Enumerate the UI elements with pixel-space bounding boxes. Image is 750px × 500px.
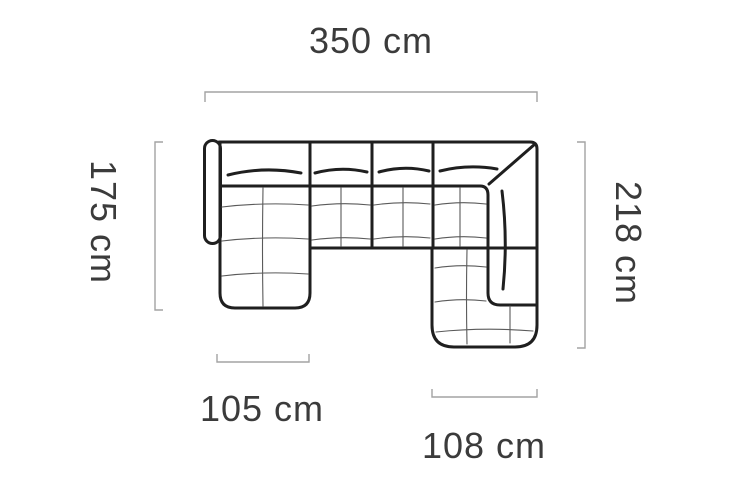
dimension-bracket-right: [577, 142, 585, 348]
dimension-label-chaise-right-width: 108 cm: [422, 425, 546, 467]
dimension-bracket-bottom-left: [217, 354, 309, 362]
left-armrest: [205, 141, 221, 244]
dimension-label-depth-right: 218 cm: [607, 181, 649, 305]
dimension-bracket-top: [205, 92, 537, 102]
dimension-label-chaise-left-width: 105 cm: [200, 388, 324, 430]
quilting-seams: [222, 188, 533, 344]
corner-diagonal: [489, 144, 535, 184]
dimension-label-width-total: 350 cm: [309, 20, 433, 62]
dimension-bracket-bottom-right: [432, 389, 537, 397]
dimension-label-depth-left: 175 cm: [82, 160, 124, 284]
diagram-canvas: 350 cm 175 cm 218 cm 105 cm 108 cm: [0, 0, 750, 500]
dimension-bracket-left: [155, 142, 163, 310]
